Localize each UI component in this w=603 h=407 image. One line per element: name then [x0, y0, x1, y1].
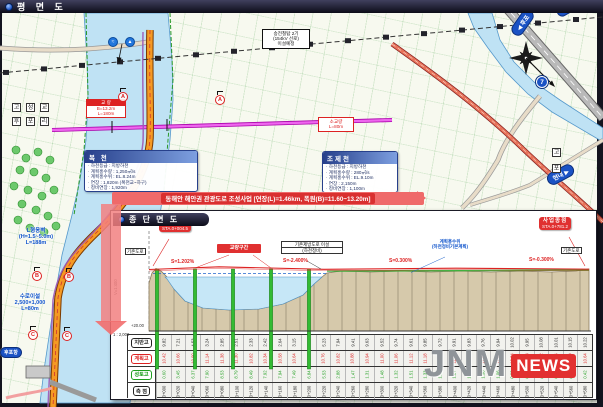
table-cell: 2.85 — [214, 335, 229, 350]
watermark-news: NEWS — [511, 354, 576, 378]
table-cell: 10.64 — [577, 351, 592, 366]
table-cell: 0+420 — [461, 383, 476, 399]
table-cell: 9.52 — [374, 335, 389, 350]
table-cell: 8.53 — [214, 367, 229, 382]
table-cell: 10.94 — [359, 351, 374, 366]
row-header: 성토고 — [128, 367, 156, 382]
table-cell: 0+240 — [330, 383, 345, 399]
row-header-button[interactable]: 계획고 — [131, 354, 151, 364]
table-cell: 11.38 — [214, 351, 229, 366]
grade-label: S=-2.400% — [283, 258, 308, 264]
table-cell: 10.22 — [577, 335, 592, 350]
place-name-char: 포 — [552, 164, 561, 173]
table-cell: 0+400 — [447, 383, 462, 399]
table-cell: 2.42 — [258, 335, 273, 350]
table-cell: 0+140 — [258, 383, 273, 399]
facility-icon: ▲ — [125, 37, 135, 47]
small-bridge-label: 소교량 L=80m — [318, 117, 354, 132]
table-cell: 10.34 — [258, 351, 273, 366]
table-cell: 3.24 — [200, 335, 215, 350]
row-header-button[interactable]: 측 점 — [133, 386, 150, 396]
table-cell: 7.92 — [258, 367, 273, 382]
watermark: JNM NEWS — [424, 344, 576, 384]
harbor-sign: 후포항 — [0, 347, 22, 358]
relocation-note-line: (하천정비) — [281, 248, 343, 254]
table-cell: 1.31 — [359, 367, 374, 382]
table-cell: 0+160 — [272, 383, 287, 399]
table-cell: 9.74 — [389, 335, 404, 350]
table-cell: 7.94 — [272, 367, 287, 382]
place-name-char: 교 — [40, 103, 49, 112]
table-cell: 10.70 — [301, 351, 316, 366]
table-cell: 0+500 — [519, 383, 534, 399]
table-cell: 0+120 — [243, 383, 258, 399]
table-cell: 0+280 — [359, 383, 374, 399]
table-cell: 10.82 — [330, 351, 345, 366]
table-cell: 7.94 — [330, 335, 345, 350]
bridge-zone-label: 교량구간 — [217, 244, 261, 253]
left-road-note: 기존도로 — [125, 248, 146, 255]
table-cell: 11.00 — [374, 351, 389, 366]
table-cell: 10.90 — [185, 351, 200, 366]
river-info-box-jojecheon: 조제천 · 하천등급 : 지방하천· 계획홍수량 : 280㎥/s· 계획홍수위… — [322, 151, 398, 193]
table-cell: 5.53 — [316, 367, 331, 382]
end-station-value: STA.0+781.2 — [542, 224, 568, 229]
route-7-shield: 7 — [536, 76, 548, 88]
start-station-value: STA.0+004.5 — [162, 226, 188, 231]
table-cell: 0.42 — [577, 367, 592, 382]
table-cell: 0+100 — [229, 383, 244, 399]
table-cell: 10.58 — [272, 351, 287, 366]
page-title: 평 면 도 — [17, 0, 67, 13]
place-name-chars-vertical: 고포 — [552, 148, 561, 175]
design-grade-line — [149, 267, 589, 270]
table-cell: 0+360 — [418, 383, 433, 399]
profile-table-row: 측 점0+0000+0200+0400+0600+0800+1000+1200+… — [128, 383, 592, 399]
place-name-char: 포 — [26, 117, 35, 126]
table-cell: 0+060 — [200, 383, 215, 399]
table-cell: 0+340 — [403, 383, 418, 399]
table-cell: 6.37 — [185, 367, 200, 382]
table-cell: 11.30 — [229, 351, 244, 366]
table-cell: 10.64 — [287, 351, 302, 366]
row-header: 계획고 — [128, 351, 156, 366]
table-cell: 0+580 — [577, 383, 592, 399]
table-cell: 11.06 — [389, 351, 404, 366]
table-cell: 2.51 — [229, 335, 244, 350]
table-cell: 7.49 — [287, 367, 302, 382]
table-cell: 11.12 — [403, 351, 418, 366]
table-cell: 0+220 — [316, 383, 331, 399]
table-cell: 1.32 — [389, 367, 404, 382]
section-marker: B — [64, 272, 74, 282]
table-cell: 10.42 — [156, 351, 171, 366]
river-info-box-bokcheon: 복 천 · 하천등급 : 지방하천· 계획홍수량 : 1,250㎥/s· 계획홍… — [84, 150, 198, 192]
flood-note-line: (하천정비기본계획) — [421, 244, 479, 249]
row-cells: 0+0000+0200+0400+0600+0800+1000+1200+140… — [156, 383, 592, 399]
project-banner: 동해안 해안권 관광도로 조성사업 [연장(L)=1.46km, 폭원(B)=1… — [112, 192, 424, 205]
table-cell: 1.48 — [374, 367, 389, 382]
table-cell: 7.21 — [171, 335, 186, 350]
retaining-wall-line: L=188m — [4, 240, 68, 246]
place-name-char: 리 — [40, 117, 49, 126]
grade-label: S=-0.300% — [529, 257, 554, 263]
table-cell: 1.51 — [403, 367, 418, 382]
transmission-note-line: 이설예정 — [265, 41, 307, 46]
table-cell: 5.23 — [316, 335, 331, 350]
section-marker: A — [118, 92, 128, 102]
inset-title: 종 단 면 도 — [129, 214, 179, 225]
table-cell: 0+080 — [214, 383, 229, 399]
place-name-char: 후 — [12, 117, 21, 126]
project-banner-text: 동해안 해안권 관광도로 조성사업 [연장(L)=1.46km, 폭원(B)=1… — [161, 193, 376, 204]
flood-level-note: 계획홍수위 (하천정비기본계획) — [421, 239, 479, 249]
small-bridge-line: L=80m — [319, 124, 353, 129]
grade-label: S=0.300% — [389, 258, 412, 264]
table-cell: 10.76 — [316, 351, 331, 366]
section-marker: A — [215, 95, 225, 105]
bridge-label: 교 량 B=13.2m L=180m — [86, 99, 126, 118]
table-cell: 0+440 — [476, 383, 491, 399]
section-marker: C — [28, 330, 38, 340]
table-cell: 0+560 — [563, 383, 578, 399]
place-name-chars: 후포리 — [12, 117, 49, 126]
bridge-label-line: L=180m — [87, 111, 125, 116]
project-extent-arrow — [101, 204, 121, 322]
place-name-char: 고 — [552, 148, 561, 157]
relocation-note: 기존제방도로 이설 (하천정비) — [281, 241, 343, 254]
table-cell: 10.88 — [345, 351, 360, 366]
table-cell: 8.79 — [229, 367, 244, 382]
row-header-button[interactable]: 성토고 — [131, 370, 151, 380]
place-name-char: 성 — [26, 103, 35, 112]
river-section — [165, 277, 322, 310]
drawing-window: 송전철탑 2기 (154kV 선로) 이설예정 교 량 B=13.2m L=18… — [0, 0, 603, 407]
info-box-title: 복 천 — [85, 151, 197, 163]
waterway-line: L=80m — [2, 306, 58, 312]
waterway-label: 수로이설 2,500×1,000 L=80m — [2, 294, 58, 312]
table-cell: 9.82 — [156, 335, 171, 350]
table-cell: 3.15 — [287, 335, 302, 350]
app-icon — [5, 3, 13, 11]
table-cell: 0+200 — [301, 383, 316, 399]
transmission-note: 송전철탑 2기 (154kV 선로) 이설예정 — [262, 29, 310, 49]
table-cell: 2.88 — [330, 367, 345, 382]
table-cell: 0+320 — [389, 383, 404, 399]
watermark-jnm: JNM — [424, 344, 507, 384]
table-cell: 10.66 — [171, 351, 186, 366]
table-cell: 0.60 — [156, 367, 171, 382]
end-station-flag: 사업종점 STA.0+781.2 — [539, 217, 571, 230]
table-cell: 6.84 — [301, 367, 316, 382]
table-cell: 9.61 — [403, 335, 418, 350]
table-cell: 1.47 — [345, 367, 360, 382]
info-box-title: 조제천 — [323, 152, 397, 164]
grade-label: S=1.202% — [171, 259, 194, 265]
table-cell: 0+460 — [490, 383, 505, 399]
table-cell: 8.49 — [243, 367, 258, 382]
table-cell: 2.64 — [272, 335, 287, 350]
table-cell: 11.14 — [200, 351, 215, 366]
main-titlebar[interactable]: 평 면 도 — [0, 0, 603, 13]
retaining-wall-label: L형옹벽 (H=1.5~5.0m) L=188m — [4, 228, 68, 246]
row-header: 측 점 — [128, 383, 156, 399]
table-cell: 0+000 — [156, 383, 171, 399]
datum-label: +20.00 — [131, 323, 144, 328]
inset-titlebar[interactable]: 종 단 면 도 — [113, 213, 209, 226]
info-box-lines: · 하천등급 : 지방하천· 계획홍수량 : 1,250㎥/s· 계획홍수위 :… — [85, 163, 197, 191]
table-cell: 9.63 — [359, 335, 374, 350]
table-cell: 0+480 — [505, 383, 520, 399]
right-road-note: 기존도로 — [561, 247, 582, 254]
section-marker: B — [32, 271, 42, 281]
table-cell: 0+300 — [374, 383, 389, 399]
terrain — [149, 269, 589, 332]
table-cell: 0+260 — [345, 383, 360, 399]
table-cell: 4.53 — [185, 335, 200, 350]
place-name-chars: 고성교 — [12, 103, 49, 112]
table-cell: 2.33 — [243, 335, 258, 350]
table-cell: 0+180 — [287, 383, 302, 399]
place-name-char: 고 — [12, 103, 21, 112]
table-cell: 7.90 — [200, 367, 215, 382]
facility-icon: ≈ — [108, 37, 118, 47]
row-header-button[interactable]: 지반고 — [131, 338, 151, 348]
table-cell: 0+520 — [534, 383, 549, 399]
table-cell: 0+040 — [185, 383, 200, 399]
info-line: · 정비연장 : 1,920m — [85, 185, 197, 191]
table-cell: 10.82 — [243, 351, 258, 366]
table-cell: 9.41 — [345, 335, 360, 350]
table-cell: 0+380 — [432, 383, 447, 399]
section-marker: C — [62, 331, 72, 341]
table-cell: 3.86 — [301, 335, 316, 350]
table-cell: 3.45 — [171, 367, 186, 382]
row-header: 지반고 — [128, 335, 156, 350]
info-box-lines: · 하천등급 : 지방하천· 계획홍수량 : 280㎥/s· 계획홍수위 : E… — [323, 164, 397, 192]
table-cell: 0+020 — [171, 383, 186, 399]
table-cell: 0+540 — [548, 383, 563, 399]
